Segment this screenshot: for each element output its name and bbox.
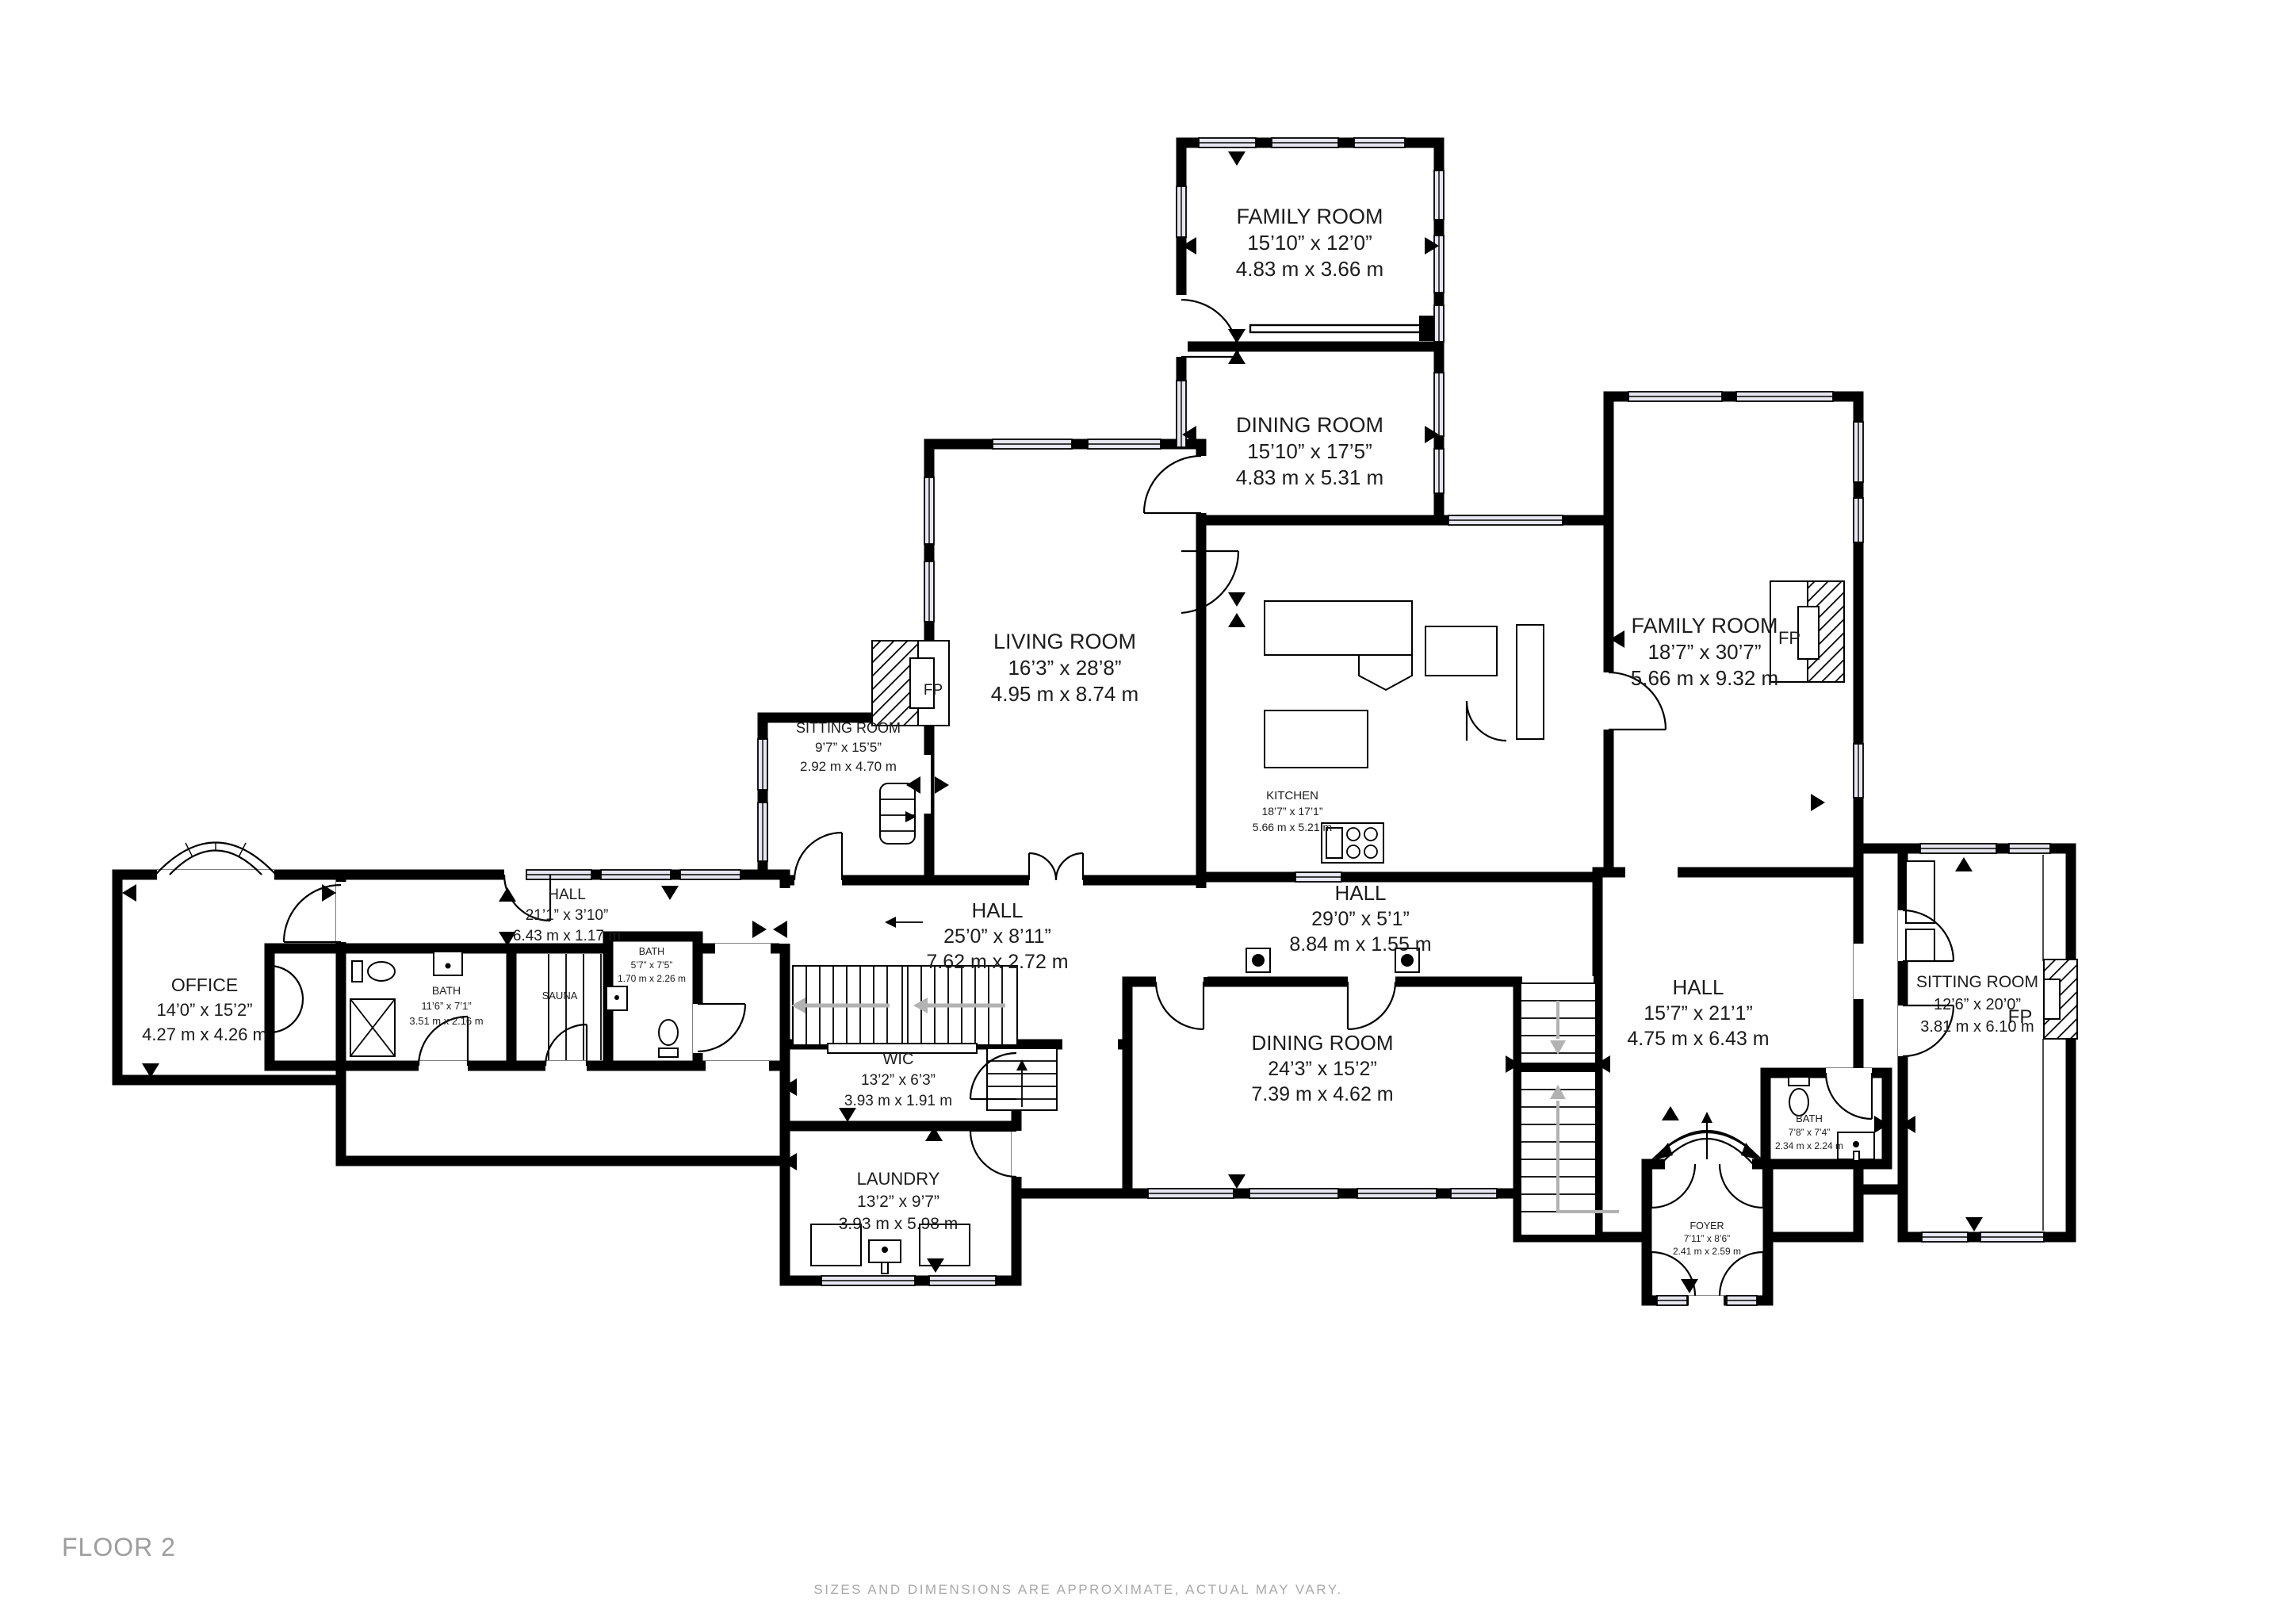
room-dims-metric: 3.51 m x 2.16 m — [409, 1015, 483, 1027]
room-dims-imperial: 13’2” x 6’3” — [861, 1072, 936, 1089]
room-dims-imperial: 16’3” x 28’8” — [1008, 656, 1121, 680]
room-dims-imperial: 21’1” x 3’10” — [526, 907, 609, 924]
fireplace-sitting-right — [2044, 959, 2077, 1039]
room-dims-imperial: 7’11” x 8’6” — [1684, 1233, 1730, 1244]
sitting-left-steps — [880, 783, 916, 844]
room-name: FAMILY ROOM — [1631, 614, 1777, 638]
toilet-icon — [1789, 1077, 1809, 1086]
label-dining-room-south: DINING ROOM 24’3” x 15’2” 7.39 m x 4.62 … — [1251, 1031, 1393, 1105]
room-dims-metric: 3.93 m x 1.91 m — [844, 1093, 952, 1109]
walls — [117, 143, 2071, 1300]
floor-plan-page: FAMILY ROOM 15’10” x 12’0” 4.83 m x 3.66… — [0, 0, 2296, 1624]
room-name: HALL — [971, 898, 1023, 922]
fireplace-label: FP — [2008, 1006, 2033, 1028]
room-dims-imperial: 15’10” x 17’5” — [1247, 439, 1372, 463]
room-dims-metric: 5.66 m x 5.21 m — [1253, 821, 1332, 833]
room-name: FOYER — [1689, 1220, 1724, 1231]
room-name: LAUNDRY — [857, 1169, 940, 1189]
label-sauna: SAUNA — [542, 990, 578, 1002]
room-dims-imperial: 29’0” x 5’1” — [1311, 908, 1410, 930]
room-dims-imperial: 13’2” x 9’7” — [857, 1193, 939, 1211]
room-name: LIVING ROOM — [993, 630, 1136, 653]
room-dims-metric: 4.75 m x 6.43 m — [1627, 1028, 1769, 1050]
room-dims-metric: 8.84 m x 1.55 m — [1289, 933, 1431, 956]
room-dims-metric: 7.39 m x 4.62 m — [1251, 1083, 1393, 1105]
room-dims-imperial: 5’7” x 7’5” — [631, 959, 673, 971]
room-dims-metric: 2.34 m x 2.24 m — [1775, 1140, 1843, 1151]
room-dims-imperial: 14’0” x 15’2” — [156, 1000, 252, 1020]
room-dims-metric: 4.83 m x 3.66 m — [1236, 257, 1383, 281]
room-name: WIC — [883, 1051, 914, 1068]
room-name: DINING ROOM — [1251, 1031, 1393, 1055]
label-living-room: LIVING ROOM 16’3” x 28’8” 4.95 m x 8.74 … — [991, 630, 1138, 706]
room-dims-metric: 4.83 m x 5.31 m — [1236, 465, 1383, 489]
room-dims-metric: 2.41 m x 2.59 m — [1673, 1246, 1741, 1257]
room-dims-imperial: 25’0” x 8’11” — [943, 925, 1051, 948]
room-dims-imperial: 9’7” x 15’5” — [815, 740, 882, 755]
room-dims-imperial: 11’6” x 7’1” — [421, 1000, 471, 1012]
toilet-icon — [659, 1020, 678, 1045]
room-name: HALL — [548, 887, 586, 903]
fireplace-label: FP — [1778, 628, 1800, 648]
room-dims-metric: 2.92 m x 4.70 m — [800, 759, 897, 774]
room-name: KITCHEN — [1266, 789, 1318, 802]
label-family-room-right: FAMILY ROOM 18’7” x 30’7” 5.66 m x 9.32 … — [1631, 614, 1778, 690]
fridge-icon — [1425, 626, 1497, 676]
label-dining-room-top: DINING ROOM 15’10” x 17’5” 4.83 m x 5.31… — [1236, 413, 1383, 489]
room-name: OFFICE — [171, 975, 238, 995]
room-name: SITTING ROOM — [1916, 973, 2038, 991]
room-name: SAUNA — [542, 990, 578, 1002]
room-dims-metric: 3.93 m x 5.98 m — [839, 1215, 959, 1233]
room-name: HALL — [1334, 881, 1386, 905]
room-dims-imperial: 24’3” x 15’2” — [1268, 1058, 1377, 1080]
room-name: BATH — [639, 946, 664, 957]
disclaimer-text: SIZES AND DIMENSIONS ARE APPROXIMATE, AC… — [813, 1582, 1342, 1597]
room-dims-metric: 6.43 m x 1.17 m — [513, 928, 621, 944]
room-dims-metric: 4.95 m x 8.74 m — [991, 682, 1138, 706]
room-dims-metric: 5.66 m x 9.32 m — [1631, 666, 1778, 690]
room-name: BATH — [1796, 1113, 1823, 1124]
room-name: BATH — [432, 984, 461, 997]
room-dims-imperial: 18’7” x 17’1” — [1261, 805, 1322, 818]
toilet-icon — [352, 961, 362, 982]
room-dims-imperial: 18’7” x 30’7” — [1647, 640, 1761, 664]
label-family-room-top: FAMILY ROOM 15’10” x 12’0” 4.83 m x 3.66… — [1236, 205, 1383, 281]
room-name: FAMILY ROOM — [1236, 205, 1383, 228]
room-name: SITTING ROOM — [796, 720, 901, 736]
room-dims-metric: 4.27 m x 4.26 m — [142, 1025, 267, 1044]
room-dims-imperial: 7’8” x 7’4” — [1789, 1127, 1831, 1138]
room-dims-metric: 7.62 m x 2.72 m — [926, 951, 1068, 973]
floor-plan-drawing: FAMILY ROOM 15’10” x 12’0” 4.83 m x 3.66… — [0, 0, 2296, 1624]
floor-label: FLOOR 2 — [62, 1533, 176, 1561]
fireplace-label: FP — [924, 682, 943, 699]
room-dims-imperial: 15’10” x 12’0” — [1247, 231, 1372, 255]
room-name: HALL — [1672, 975, 1724, 999]
room-dims-imperial: 15’7” x 21’1” — [1644, 1002, 1753, 1025]
room-name: DINING ROOM — [1236, 413, 1383, 437]
room-dims-metric: 1.70 m x 2.26 m — [618, 973, 686, 984]
